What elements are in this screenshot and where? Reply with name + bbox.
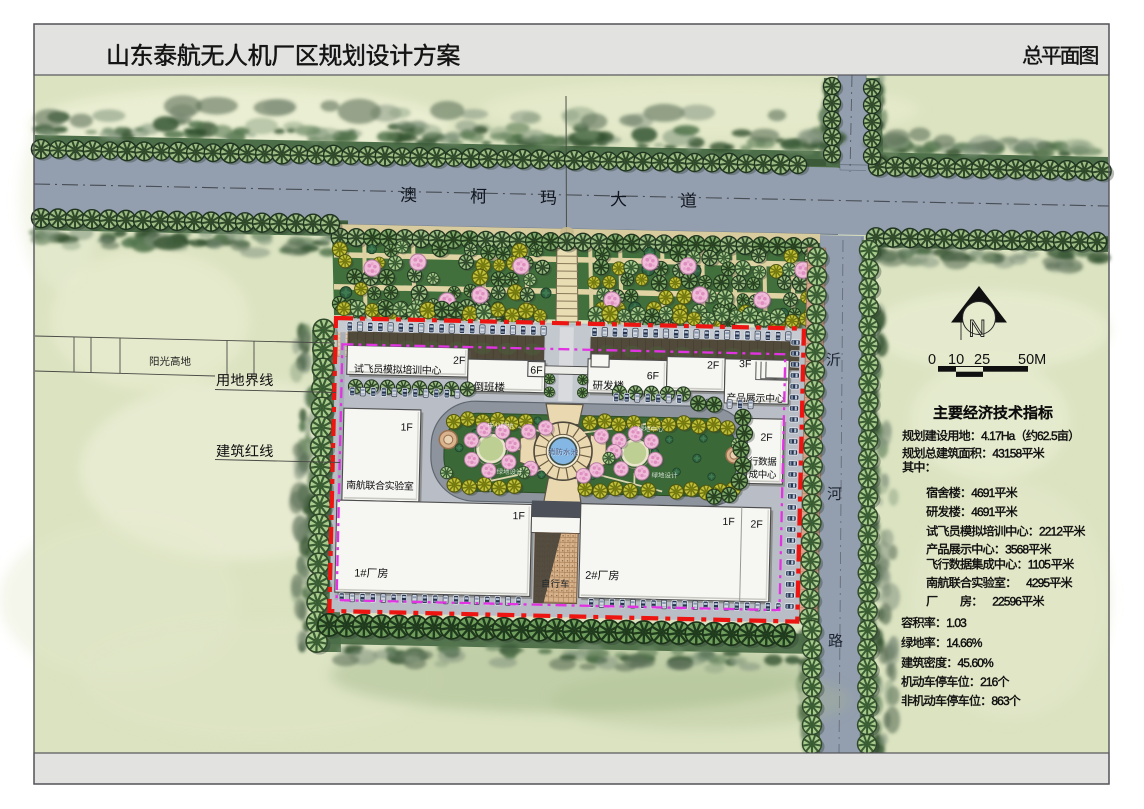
svg-text:62.5: 62.5: [1037, 429, 1058, 443]
svg-text:1F: 1F: [400, 422, 413, 434]
svg-text:25: 25: [974, 352, 990, 368]
svg-text:4691: 4691: [971, 505, 995, 519]
svg-text:1#: 1#: [354, 568, 367, 580]
svg-text:3568: 3568: [1005, 543, 1029, 557]
svg-text:6F: 6F: [647, 370, 660, 382]
svg-text:43158: 43158: [992, 447, 1022, 461]
svg-text:3F: 3F: [739, 358, 752, 370]
svg-text:4295: 4295: [1026, 576, 1050, 590]
svg-text:22596: 22596: [992, 595, 1022, 609]
svg-text:0: 0: [928, 352, 936, 368]
svg-text:4691: 4691: [971, 486, 995, 500]
svg-text:2F: 2F: [760, 432, 773, 444]
svg-text:1F: 1F: [512, 510, 525, 522]
svg-text:2#: 2#: [585, 570, 598, 582]
svg-text:10: 10: [948, 352, 964, 368]
svg-text:14.66%: 14.66%: [946, 636, 983, 650]
svg-text:2212: 2212: [1039, 525, 1063, 539]
svg-text:1F: 1F: [722, 516, 735, 528]
svg-text:6F: 6F: [530, 364, 543, 376]
svg-text:4.17Ha: 4.17Ha: [981, 429, 1016, 443]
svg-text:45.60%: 45.60%: [958, 656, 995, 670]
svg-text:1.03: 1.03: [946, 616, 967, 630]
svg-text:N: N: [969, 316, 986, 343]
svg-text:50M: 50M: [1018, 352, 1046, 368]
svg-text:863: 863: [991, 694, 1010, 708]
svg-text:2F: 2F: [707, 359, 720, 371]
svg-text:2F: 2F: [750, 518, 763, 530]
svg-text:2F: 2F: [453, 355, 466, 367]
svg-text:1105: 1105: [1028, 558, 1051, 572]
svg-text:216: 216: [980, 675, 999, 689]
